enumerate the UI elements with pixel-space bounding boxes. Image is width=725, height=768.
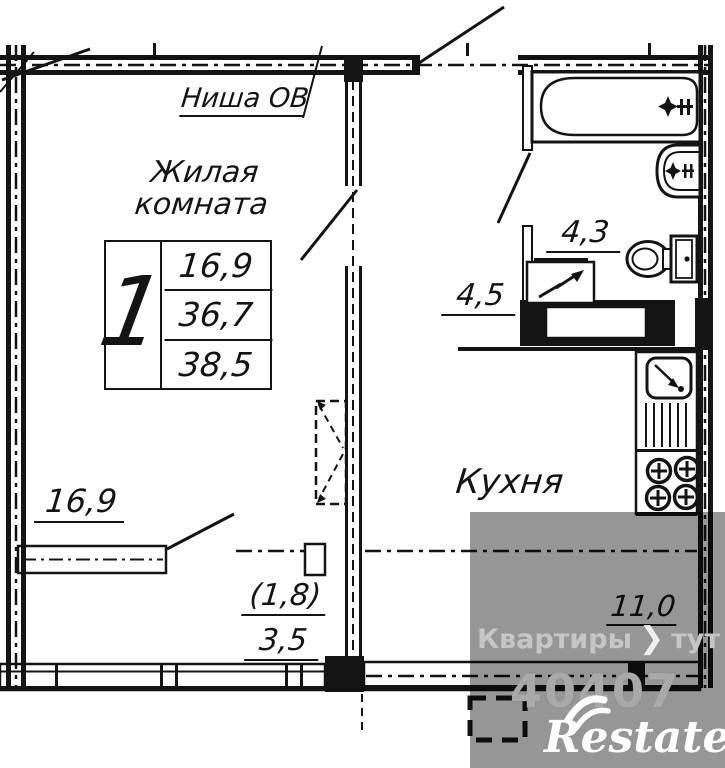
bathtub bbox=[532, 72, 700, 142]
sink bbox=[657, 145, 700, 197]
logo-text: Restate bbox=[542, 712, 725, 763]
wardrobe-dashed bbox=[316, 401, 346, 504]
label-niche: Ниша ОВ bbox=[179, 84, 306, 117]
label-kitchen: Кухня bbox=[454, 464, 562, 501]
label-hall-area: 4,5 bbox=[441, 280, 519, 316]
info-area: 36,7 bbox=[159, 289, 272, 338]
info-living-area: 16,9 bbox=[160, 242, 273, 289]
restate-logo: Restate bbox=[538, 688, 725, 764]
chevron-right-icon: ❯ bbox=[639, 624, 664, 654]
label-living-room-line2: комната bbox=[125, 189, 278, 221]
label-living-room: Жилая комната bbox=[125, 157, 282, 222]
living-room-window bbox=[18, 544, 325, 575]
watermark-word1: Квартиры bbox=[477, 624, 632, 655]
info-table-rooms-cell: 1 bbox=[106, 242, 162, 388]
watermark-site-name: Квартиры ❯ тут bbox=[477, 624, 717, 655]
water-heater bbox=[527, 258, 594, 303]
apartment-info-table: 1 16,9 36,7 38,5 bbox=[104, 240, 272, 390]
toilet bbox=[627, 236, 697, 282]
info-table-areas: 16,9 36,7 38,5 bbox=[162, 242, 270, 388]
floor-plan: Ниша ОВ Жилая комната 1 16,9 36,7 38,5 1… bbox=[0, 0, 725, 768]
label-living-area: 16,9 bbox=[34, 484, 128, 523]
kitchen-counter bbox=[636, 352, 699, 516]
loggia-glazing-band bbox=[0, 664, 325, 691]
label-living-room-line1: Жилая bbox=[128, 157, 281, 189]
label-bathroom-area: 4,3 bbox=[546, 217, 624, 253]
watermark-word2: тут bbox=[671, 624, 720, 655]
label-loggia-reduced-area: (1,8) bbox=[241, 580, 329, 616]
label-loggia-area: 3,5 bbox=[244, 625, 322, 661]
info-total-area: 38,5 bbox=[159, 339, 272, 388]
